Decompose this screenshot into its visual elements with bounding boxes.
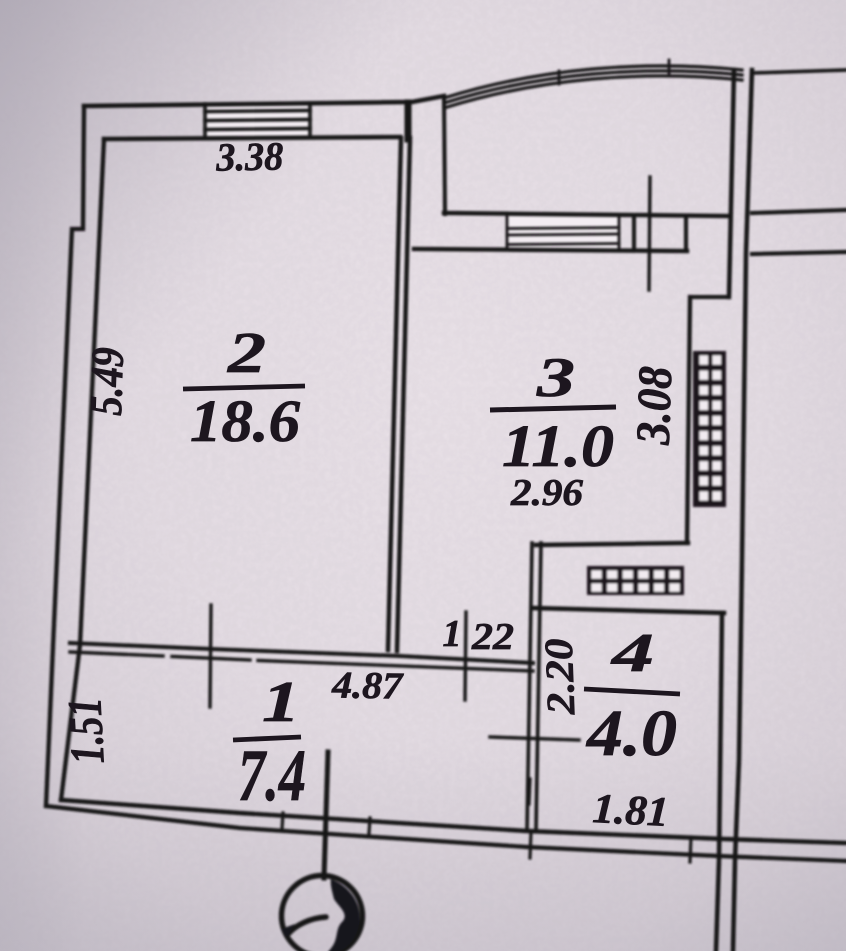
svg-text:4.87: 4.87: [331, 664, 405, 707]
svg-text:2: 2: [227, 320, 266, 385]
svg-text:4: 4: [610, 622, 654, 683]
svg-text:3.38: 3.38: [215, 133, 284, 179]
svg-text:3.08: 3.08: [627, 366, 683, 447]
svg-text:1.51: 1.51: [58, 696, 114, 765]
svg-text:7.4: 7.4: [238, 735, 306, 817]
svg-text:1.81: 1.81: [592, 786, 670, 836]
svg-text:3: 3: [536, 347, 575, 409]
svg-text:18.6: 18.6: [190, 388, 300, 454]
svg-text:2.96: 2.96: [510, 472, 583, 514]
svg-text:5.49: 5.49: [80, 347, 133, 417]
svg-text:22: 22: [471, 616, 514, 658]
svg-text:2.20: 2.20: [536, 638, 584, 717]
svg-text:11.0: 11.0: [502, 413, 614, 479]
svg-text:1: 1: [262, 669, 300, 734]
svg-text:4.0: 4.0: [585, 697, 677, 770]
svg-text:1: 1: [443, 613, 462, 655]
